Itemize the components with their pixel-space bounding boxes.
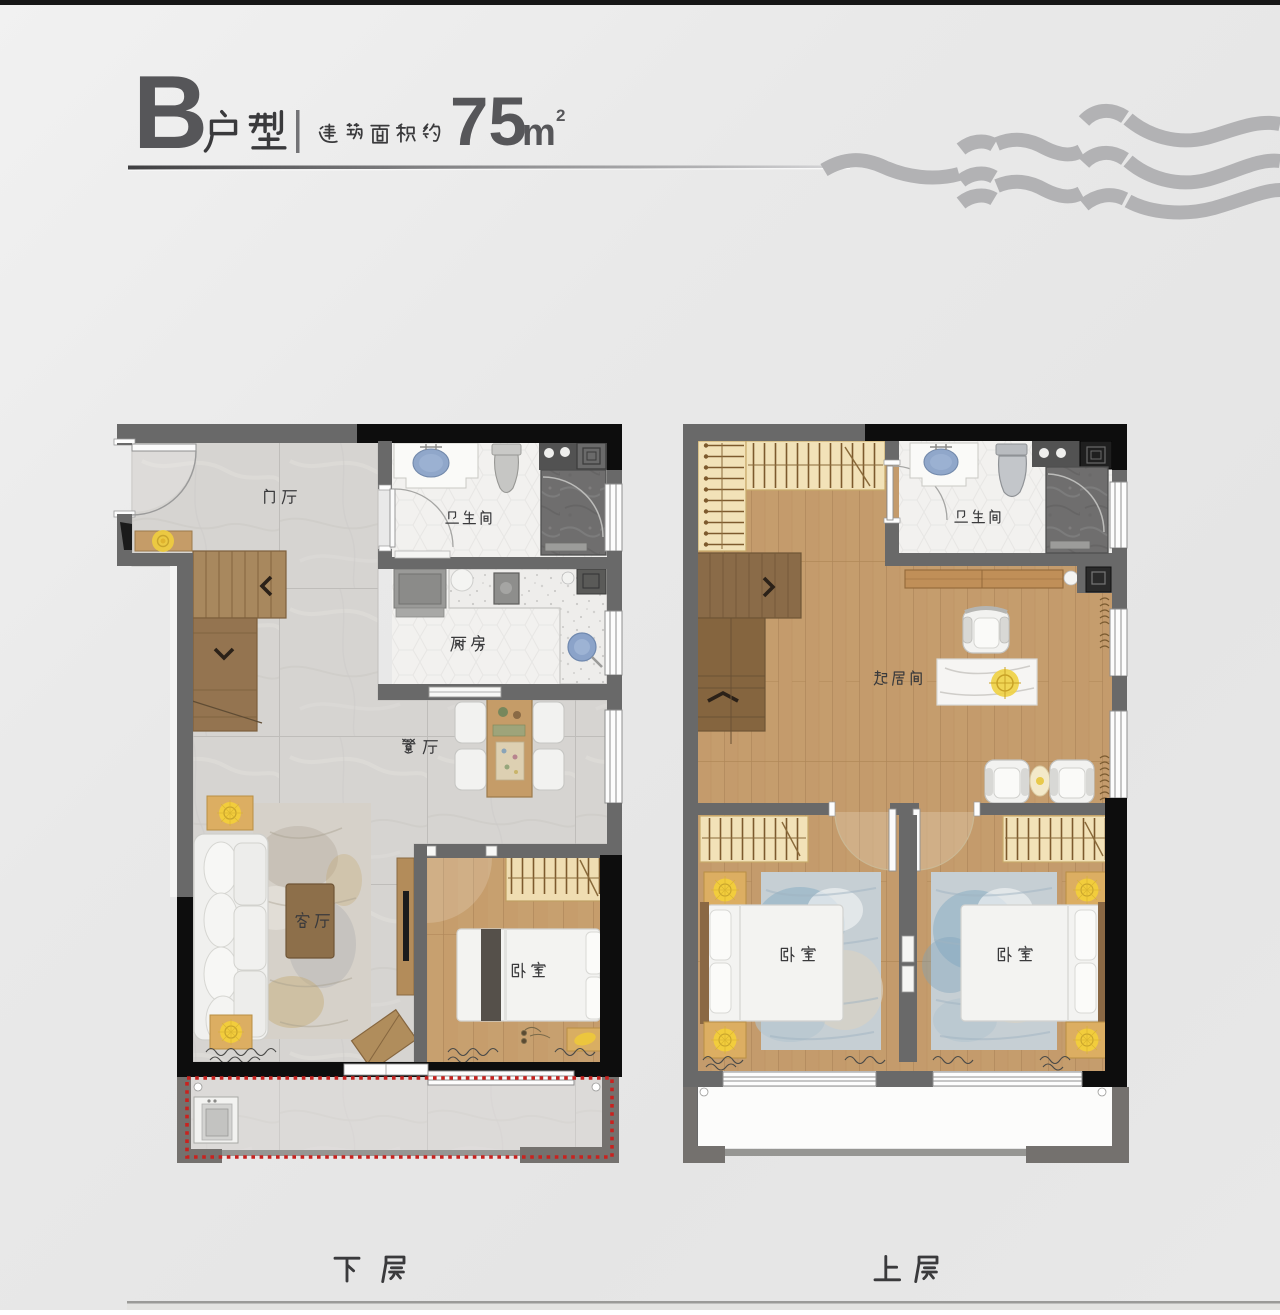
svg-text:75: 75 bbox=[450, 83, 527, 160]
svg-text:m: m bbox=[522, 112, 556, 154]
svg-text:B: B bbox=[133, 55, 208, 171]
svg-text:2: 2 bbox=[556, 106, 565, 125]
